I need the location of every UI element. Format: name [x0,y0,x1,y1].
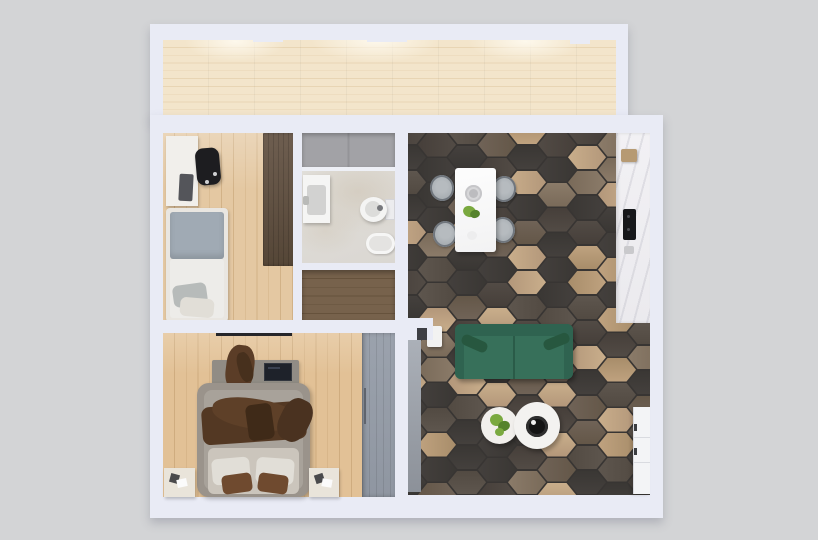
sink-faucet [303,196,309,205]
entry-wall [395,318,433,340]
counter-cooktop [623,209,636,240]
hex-tile [598,433,636,457]
hex-tile [418,408,456,432]
hex-tile [508,196,546,220]
hex-tile [448,271,486,295]
hex-tile [538,158,576,182]
walnut-wardrobe [263,133,297,266]
cooktop-knob [627,215,630,218]
tray-highlight [531,420,536,425]
balcony-awning-tab [367,34,407,42]
sofa-backrest [455,324,573,336]
hex-tile [508,271,546,295]
hex-tile [418,433,456,457]
entry-door-notch [417,328,427,340]
hex-tile [598,383,636,407]
wall-trim-line [216,333,292,336]
shower-glass-edge [302,167,395,171]
floor-plan-render [0,0,818,540]
hex-tile [448,446,486,470]
sink-basin [307,185,326,215]
hex-tile [508,446,546,470]
pillow [179,297,215,319]
plate-center [469,189,478,198]
hex-tile [538,258,576,282]
hex-tile [538,208,576,232]
accent-pillow [257,472,289,495]
toilet-flush [377,205,383,211]
hex-tile [448,296,486,320]
tv-glare [268,367,280,369]
counter-item [624,246,634,254]
chair-base-detail [205,180,209,184]
hex-tile [508,146,546,170]
throw-knot [245,402,276,441]
hex-tile [418,458,456,482]
hex-tile [478,383,516,407]
hex-tile [448,146,486,170]
cabinet-divider [633,437,650,438]
hex-tile [538,233,576,257]
hex-tile [568,346,606,370]
hex-tile [448,471,486,495]
sofa-cushion-seam [513,336,515,379]
interior-wall [293,133,302,322]
coffee-table-plant-leaf [495,428,504,436]
hex-tile [568,421,606,445]
hex-tile [568,246,606,270]
shower [302,133,395,167]
balcony-floor [163,40,616,115]
cabinet-divider [633,462,650,463]
hex-tile [598,333,636,357]
hex-tile [568,271,606,295]
desk-monitor [178,174,193,202]
cabinet-handle [634,448,637,455]
hex-tile [568,296,606,320]
hex-tile [568,371,606,395]
wardrobe-handle [364,388,366,424]
interior-wall [302,263,395,270]
hex-tile [478,133,516,157]
hex-tile [418,133,456,157]
bathtub-inner [369,236,392,251]
hex-tile [598,408,636,432]
hex-tile [538,283,576,307]
hex-tile [568,171,606,195]
entry-floor-strip [408,340,421,492]
hex-tile [568,221,606,245]
hex-tile [418,383,456,407]
gray-wardrobe [362,333,395,497]
hex-tile [598,458,636,482]
hex-tile [568,196,606,220]
hex-tile [478,458,516,482]
hex-tile [538,183,576,207]
table-dish [467,231,477,240]
balcony-awning-tab [253,34,283,42]
hex-tile [568,446,606,470]
hex-tile [538,133,576,157]
hex-tile [418,283,456,307]
hex-tile [508,296,546,320]
hex-tile [448,396,486,420]
interior-wall [163,320,408,333]
counter-wood-item [621,149,637,162]
interior-wall [395,133,408,495]
hex-tile [538,458,576,482]
hex-tile [568,146,606,170]
tv-screen [264,363,292,381]
balcony-awning-tab [570,37,590,44]
cabinet-handle [634,424,637,431]
hex-tile [568,471,606,495]
sofa-armrest-left [455,324,464,379]
hex-tile [508,471,546,495]
hex-tile [478,258,516,282]
hex-tile [478,283,516,307]
chair-base-detail [213,172,217,176]
black-tray [526,416,548,437]
hex-tile [568,396,606,420]
hex-tile [418,358,456,382]
nightstand-book [321,478,332,488]
hex-tile [598,358,636,382]
closet-floor [302,270,395,320]
hex-tile [508,246,546,270]
cooktop-knob [627,228,630,231]
hex-tile [568,321,606,345]
hex-tile [418,258,456,282]
single-bed-blanket [170,212,224,259]
